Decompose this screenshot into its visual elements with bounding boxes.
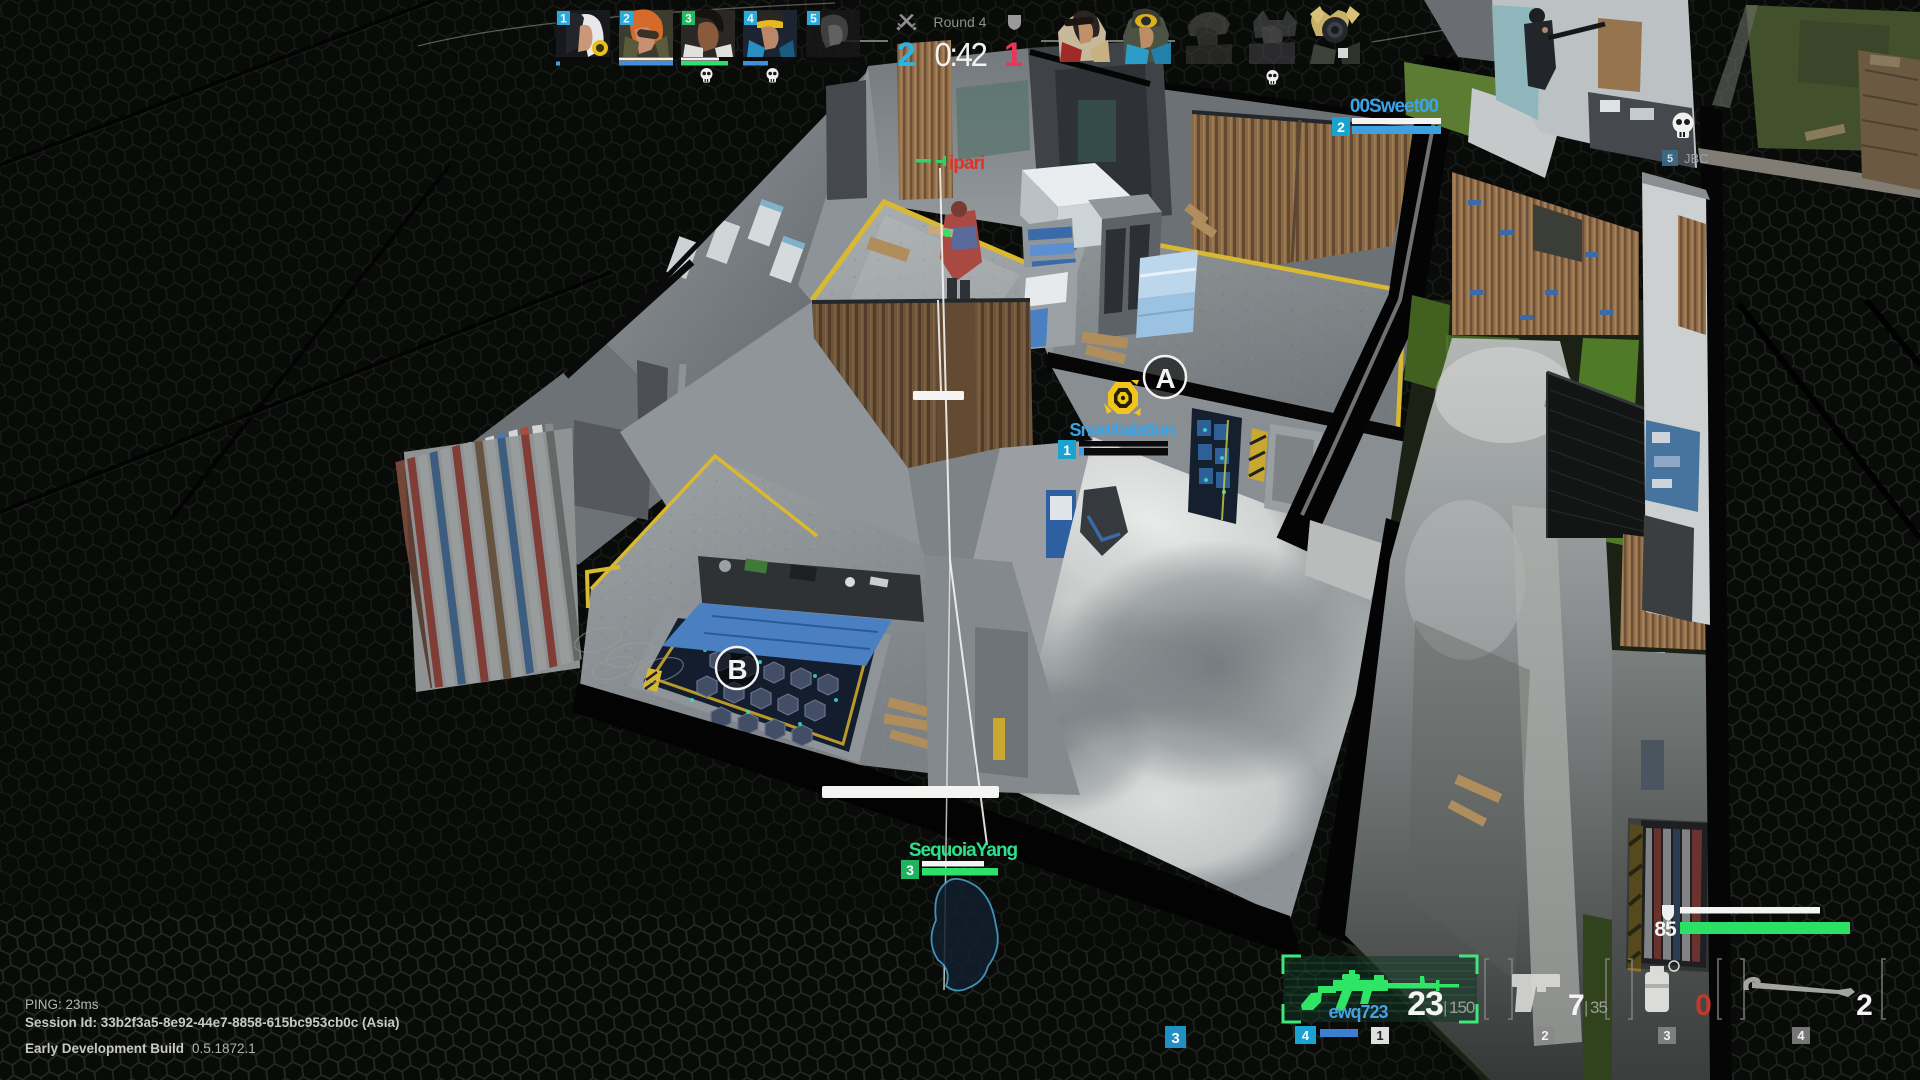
svg-text:Early Development Build: Early Development Build — [25, 1041, 184, 1056]
svg-text:5: 5 — [810, 12, 817, 26]
svg-text:1: 1 — [560, 12, 567, 26]
svg-text:00Sweet00: 00Sweet00 — [1350, 96, 1439, 117]
svg-text:3: 3 — [906, 862, 914, 878]
svg-text:4: 4 — [1302, 1028, 1310, 1043]
svg-text:23: 23 — [1407, 985, 1443, 1023]
svg-text:1: 1 — [1376, 1028, 1383, 1043]
svg-text:Snowhalation: Snowhalation — [1070, 420, 1175, 440]
svg-text:2: 2 — [1337, 119, 1345, 135]
svg-text:150: 150 — [1449, 998, 1475, 1017]
svg-text:B: B — [727, 654, 746, 685]
svg-text:|: | — [1443, 998, 1447, 1017]
svg-text:85: 85 — [1654, 918, 1677, 941]
svg-text:PING: 23ms: PING: 23ms — [25, 997, 99, 1012]
svg-text:2: 2 — [897, 36, 915, 74]
svg-text:3: 3 — [685, 12, 692, 26]
svg-text:2: 2 — [1541, 1028, 1548, 1043]
svg-text:ipari: ipari — [949, 153, 984, 174]
svg-text:7: 7 — [1568, 989, 1584, 1022]
svg-text:2: 2 — [1856, 989, 1872, 1022]
svg-text:|: | — [1584, 998, 1588, 1017]
svg-text:4: 4 — [747, 12, 754, 26]
svg-text:JBC: JBC — [1684, 151, 1709, 166]
svg-text:0.5.1872.1: 0.5.1872.1 — [192, 1041, 256, 1056]
svg-text:3: 3 — [1171, 1030, 1179, 1047]
svg-text:5: 5 — [1667, 153, 1673, 165]
svg-text:3: 3 — [1663, 1028, 1670, 1043]
svg-text:4: 4 — [1797, 1028, 1805, 1043]
svg-text:SequoiaYang: SequoiaYang — [909, 840, 1018, 861]
svg-text:Session Id: 33b2f3a5-8e92-44e7: Session Id: 33b2f3a5-8e92-44e7-8858-615b… — [25, 1015, 399, 1030]
svg-text:0:42: 0:42 — [935, 36, 988, 73]
svg-text:0: 0 — [1695, 989, 1711, 1022]
svg-text:Round 4: Round 4 — [934, 14, 987, 30]
svg-text:35: 35 — [1590, 998, 1607, 1017]
svg-text:A: A — [1155, 363, 1175, 394]
svg-text:1: 1 — [1004, 36, 1022, 74]
svg-text:2: 2 — [623, 12, 630, 26]
svg-text:ewq723: ewq723 — [1328, 1002, 1388, 1022]
svg-text:1: 1 — [1063, 442, 1071, 458]
